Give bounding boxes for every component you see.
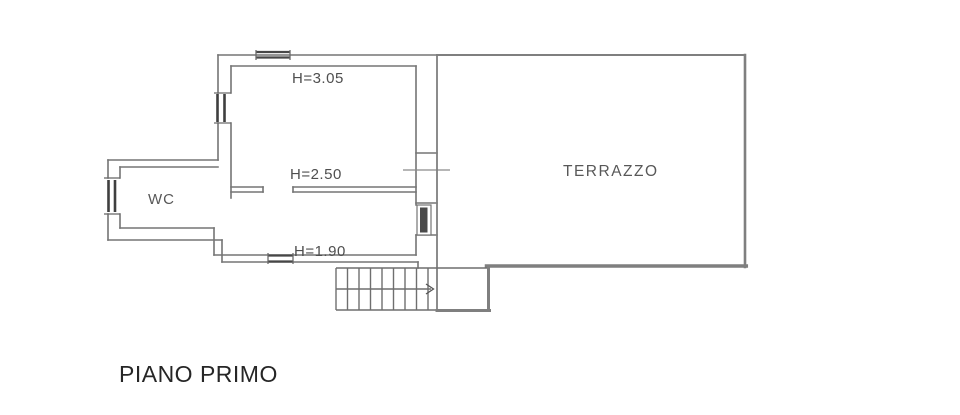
height-annotation-middle-room: H=2.50 [290,166,342,183]
floor-plan-drawing: H=3.05 H=2.50 H=1.90 WC TERRAZZO PIANO P… [0,0,960,415]
wc-room-label: WC [148,191,175,208]
terrazzo-room-label: TERRAZZO [563,163,659,180]
terrace-door [417,205,431,235]
wc-window [104,178,120,214]
height-annotation-lower-room: H=1.90 [294,243,346,260]
west-window [214,93,231,123]
partition-wall [231,187,416,192]
floor-title-label: PIANO PRIMO [119,361,278,387]
terrace-outline [437,55,746,310]
terrace-door-panel [420,208,428,233]
staircase [336,268,490,311]
height-annotation-upper-room: H=3.05 [292,70,344,87]
south-window [268,253,293,264]
floor-plan-canvas: H=3.05 H=2.50 H=1.90 WC TERRAZZO PIANO P… [0,0,960,415]
